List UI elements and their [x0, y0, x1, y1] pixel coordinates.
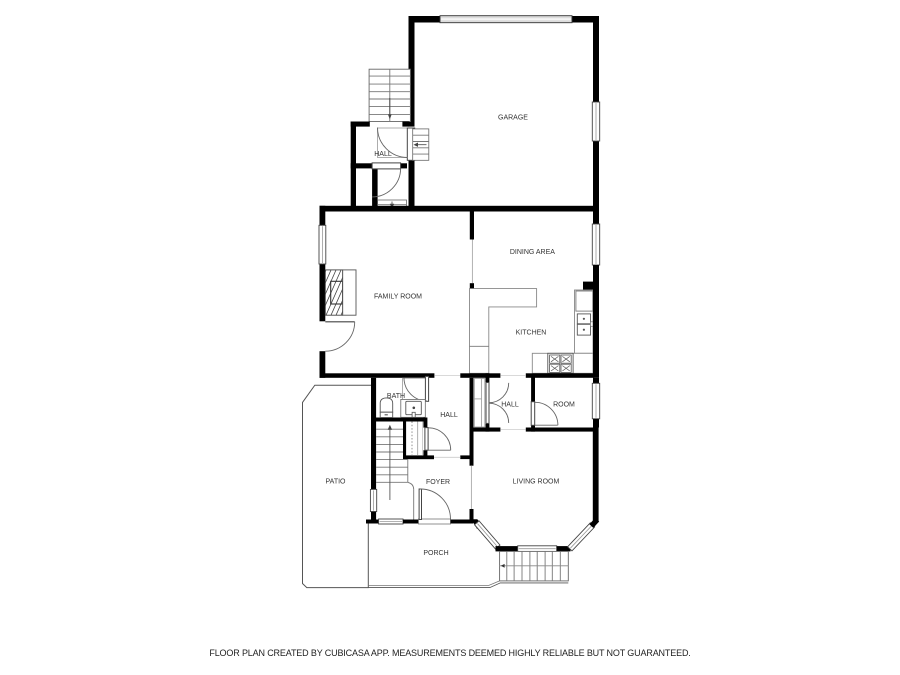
- svg-text:HALL: HALL: [374, 151, 392, 158]
- svg-text:HALL: HALL: [501, 402, 519, 409]
- svg-text:ROOM: ROOM: [553, 402, 575, 409]
- svg-text:FAMILY ROOM: FAMILY ROOM: [374, 294, 422, 301]
- svg-text:HALL: HALL: [440, 412, 458, 419]
- svg-text:PATIO: PATIO: [326, 479, 347, 486]
- svg-text:GARAGE: GARAGE: [498, 115, 528, 122]
- svg-text:DINING AREA: DINING AREA: [510, 249, 555, 256]
- svg-text:FLOOR PLAN CREATED BY CUBICASA: FLOOR PLAN CREATED BY CUBICASA APP. MEAS…: [209, 648, 690, 658]
- svg-text:FOYER: FOYER: [426, 479, 450, 486]
- svg-text:KITCHEN: KITCHEN: [516, 330, 547, 337]
- svg-text:LIVING ROOM: LIVING ROOM: [513, 479, 560, 486]
- svg-text:PORCH: PORCH: [423, 550, 448, 557]
